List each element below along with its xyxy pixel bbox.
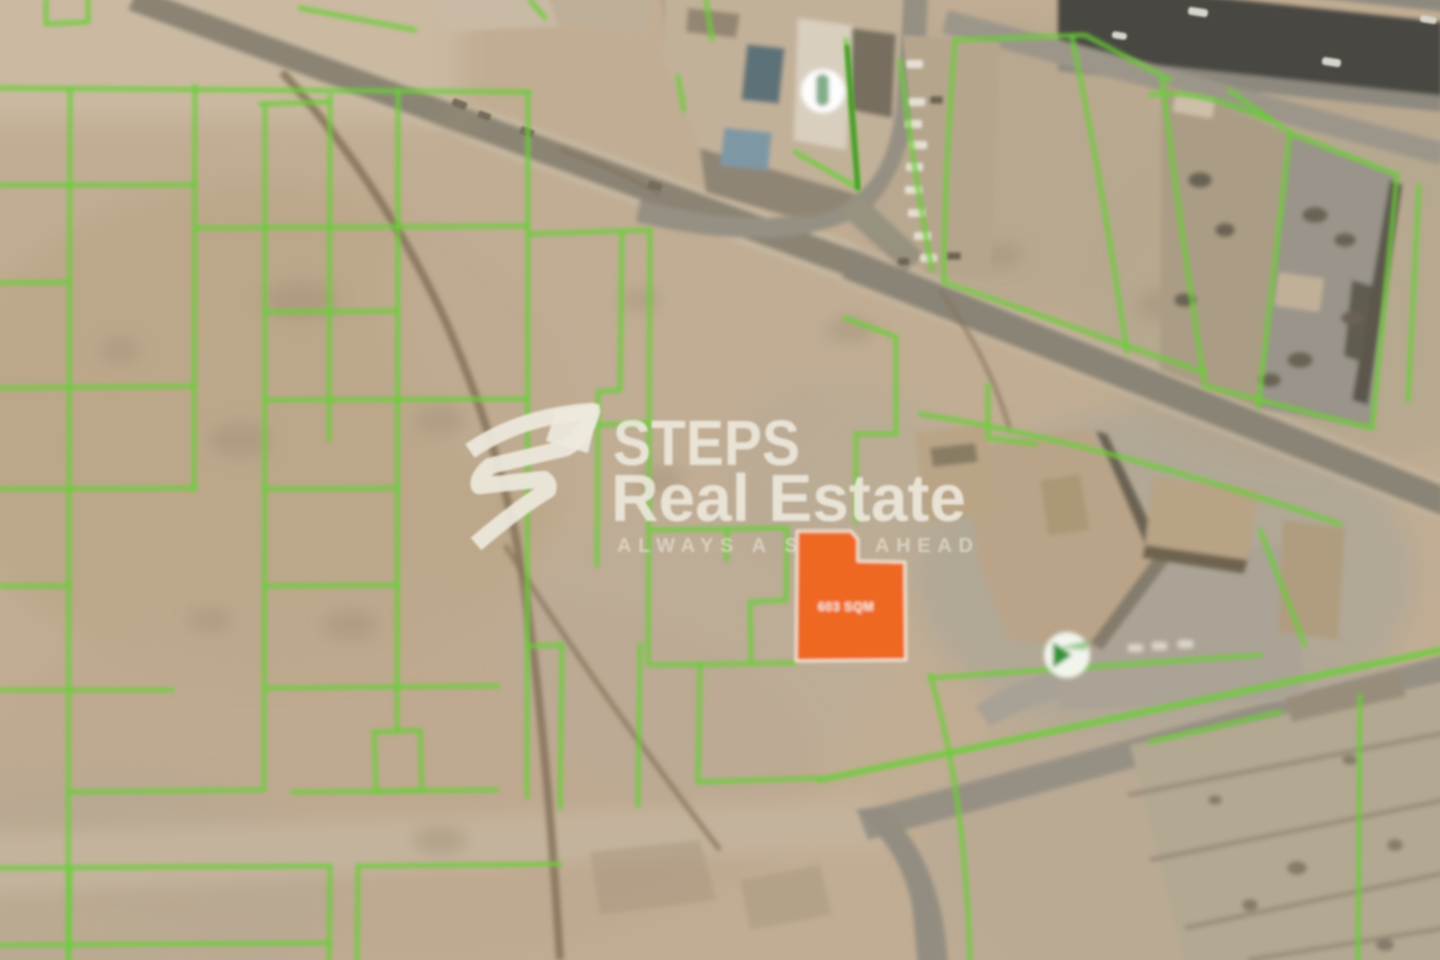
svg-text:603 SQM: 603 SQM (818, 600, 874, 614)
svg-text:Real Estate: Real Estate (611, 461, 966, 536)
svg-text:ALWAYS A STEP AHEAD: ALWAYS A STEP AHEAD (617, 535, 973, 557)
